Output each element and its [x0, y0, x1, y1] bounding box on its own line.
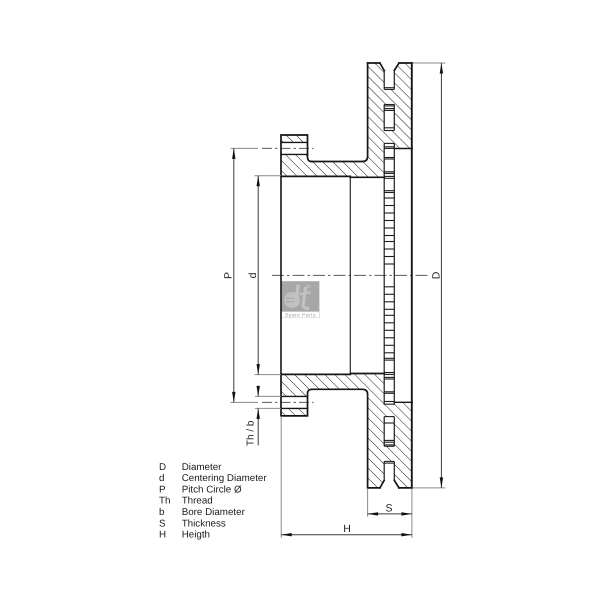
svg-text:d: d — [159, 473, 164, 484]
svg-text:P: P — [159, 484, 166, 495]
svg-text:Spare Parts: Spare Parts — [285, 313, 316, 319]
svg-text:Th / b: Th / b — [246, 420, 257, 446]
svg-text:P: P — [223, 272, 235, 279]
svg-text:Diameter: Diameter — [182, 462, 222, 473]
svg-text:H: H — [343, 523, 351, 535]
svg-text:Centering Diameter: Centering Diameter — [182, 473, 268, 484]
svg-text:H: H — [159, 530, 166, 541]
svg-text:Thickness: Thickness — [182, 518, 226, 529]
svg-text:D: D — [159, 462, 166, 473]
svg-text:Pitch Circle Ø: Pitch Circle Ø — [182, 484, 242, 495]
svg-text:S: S — [159, 518, 166, 529]
svg-text:S: S — [385, 503, 392, 515]
svg-text:d: d — [247, 272, 259, 278]
svg-text:b: b — [159, 507, 165, 518]
svg-text:Th: Th — [159, 496, 170, 507]
svg-text:Thread: Thread — [182, 496, 213, 507]
svg-text:Bore Diameter: Bore Diameter — [182, 507, 246, 518]
svg-text:Heigth: Heigth — [182, 530, 210, 541]
svg-text:D: D — [430, 271, 442, 279]
